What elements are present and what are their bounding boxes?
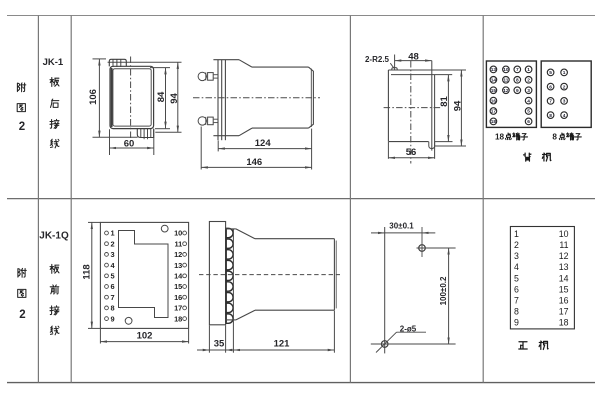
svg-text:4: 4 (563, 113, 566, 119)
svg-text:JK-1: JK-1 (43, 57, 64, 68)
svg-text:100±0.2: 100±0.2 (439, 276, 448, 305)
svg-text:1: 1 (514, 229, 519, 239)
svg-text:2-ø5: 2-ø5 (400, 324, 417, 333)
svg-text:1: 1 (563, 70, 566, 76)
svg-text:5: 5 (549, 70, 552, 76)
svg-text:84: 84 (156, 91, 167, 102)
svg-text:10: 10 (559, 229, 569, 239)
svg-text:11: 11 (174, 239, 182, 248)
svg-text:60: 60 (124, 138, 135, 149)
svg-text:5: 5 (514, 273, 519, 283)
svg-text:16: 16 (174, 293, 182, 302)
svg-text:4: 4 (514, 262, 519, 272)
svg-text:2: 2 (19, 121, 25, 133)
svg-text:17: 17 (559, 307, 569, 317)
svg-text:15: 15 (174, 282, 182, 291)
svg-text:JK-1Q: JK-1Q (39, 231, 69, 242)
svg-text:2-R2.5: 2-R2.5 (365, 55, 390, 64)
svg-text:13: 13 (174, 261, 182, 270)
svg-text:6: 6 (527, 119, 530, 125)
svg-text:14: 14 (559, 273, 569, 283)
svg-text:15: 15 (559, 284, 569, 294)
svg-text:10: 10 (503, 67, 509, 73)
svg-text:16: 16 (559, 296, 569, 306)
svg-text:3: 3 (514, 251, 519, 261)
svg-text:3: 3 (563, 99, 566, 105)
svg-text:1: 1 (111, 229, 115, 238)
svg-text:8: 8 (514, 307, 519, 317)
svg-text:12: 12 (174, 250, 182, 259)
svg-text:15: 15 (491, 88, 497, 94)
svg-text:14: 14 (174, 272, 183, 281)
svg-text:8: 8 (516, 78, 519, 84)
svg-text:106: 106 (88, 89, 99, 105)
svg-text:7: 7 (549, 99, 552, 105)
svg-text:13: 13 (559, 262, 569, 272)
svg-text:146: 146 (246, 157, 262, 168)
svg-text:9: 9 (111, 314, 115, 323)
svg-text:8: 8 (552, 132, 557, 141)
svg-text:8: 8 (111, 304, 115, 313)
svg-text:18: 18 (491, 119, 497, 125)
svg-text:4: 4 (527, 98, 530, 104)
svg-text:7: 7 (111, 293, 115, 302)
svg-text:12: 12 (559, 251, 569, 261)
svg-text:2: 2 (19, 309, 25, 321)
svg-text:3: 3 (111, 250, 115, 259)
svg-text:5: 5 (527, 109, 530, 115)
svg-text:12: 12 (503, 88, 509, 94)
svg-text:94: 94 (169, 93, 180, 104)
svg-text:18: 18 (174, 314, 182, 323)
svg-text:124: 124 (255, 138, 272, 149)
svg-text:2: 2 (527, 78, 530, 84)
svg-text:8: 8 (549, 113, 552, 119)
svg-text:56: 56 (406, 147, 417, 158)
svg-text:17: 17 (174, 304, 182, 313)
svg-text:17: 17 (491, 109, 497, 115)
svg-text:6: 6 (514, 284, 519, 294)
svg-text:6: 6 (111, 282, 115, 291)
svg-text:9: 9 (516, 88, 519, 94)
svg-text:30±0.1: 30±0.1 (389, 222, 414, 231)
svg-text:102: 102 (137, 331, 153, 342)
svg-text:18: 18 (559, 318, 569, 328)
svg-text:7: 7 (516, 67, 519, 73)
svg-text:121: 121 (274, 339, 291, 350)
svg-text:2: 2 (563, 84, 566, 90)
svg-text:7: 7 (514, 296, 519, 306)
svg-text:6: 6 (549, 84, 552, 90)
svg-text:81: 81 (439, 96, 450, 107)
svg-text:3: 3 (527, 88, 530, 94)
svg-text:11: 11 (503, 78, 508, 84)
svg-text:48: 48 (408, 51, 419, 62)
svg-text:1: 1 (527, 67, 530, 73)
svg-text:18: 18 (495, 132, 505, 141)
svg-text:2: 2 (111, 239, 115, 248)
svg-text:14: 14 (491, 78, 497, 84)
svg-text:5: 5 (111, 272, 115, 281)
svg-text:16: 16 (491, 98, 497, 104)
svg-text:94: 94 (453, 100, 464, 111)
svg-text:10: 10 (174, 229, 182, 238)
svg-text:9: 9 (514, 318, 519, 328)
svg-text:13: 13 (491, 67, 497, 73)
svg-text:35: 35 (214, 339, 225, 350)
svg-text:2: 2 (514, 240, 519, 250)
svg-text:11: 11 (559, 240, 568, 250)
svg-text:118: 118 (81, 264, 92, 279)
